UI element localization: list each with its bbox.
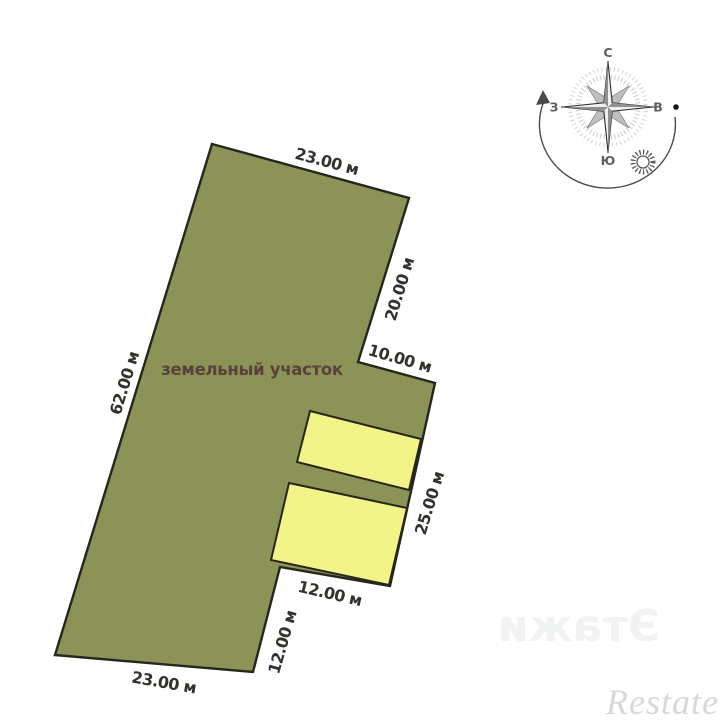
compass-east-label: В: [653, 100, 663, 115]
compass-rose: С Ю З В: [536, 45, 679, 188]
dim-bottom-edge-label: 23.00 м: [130, 667, 197, 697]
compass-west-needle-shade: [563, 107, 608, 111]
sun-path-arrowhead: [536, 90, 550, 105]
dim-lower-right-edge-label: 25.00 м: [411, 469, 448, 537]
compass-east-needle-shade: [608, 103, 653, 107]
site-plan-canvas: etag земельный участок 23.00 м 20.00 м 1…: [0, 0, 725, 725]
sun-icon: [633, 152, 653, 172]
dim-buildings-bottom-edge-label: 12.00 м: [296, 577, 364, 610]
sun-disc: [637, 156, 649, 168]
plot-title-group: земельный участок: [161, 360, 343, 379]
compass-south-needle-shade: [608, 107, 612, 152]
watermark-mirrored-group: Этажи: [498, 601, 660, 652]
compass-west-label: З: [550, 100, 559, 115]
watermark-restate: Restate: [605, 682, 719, 722]
plot-title: земельный участок: [161, 360, 343, 379]
compass-south-label: Ю: [601, 153, 616, 168]
compass-north-label: С: [603, 45, 612, 60]
dim-notch-side-edge-label: 12.00 м: [264, 608, 300, 676]
site-plan-svg: etag земельный участок 23.00 м 20.00 м 1…: [0, 0, 725, 725]
compass-east-dot: [673, 104, 679, 110]
watermark-mirrored: Этажи: [498, 601, 660, 652]
